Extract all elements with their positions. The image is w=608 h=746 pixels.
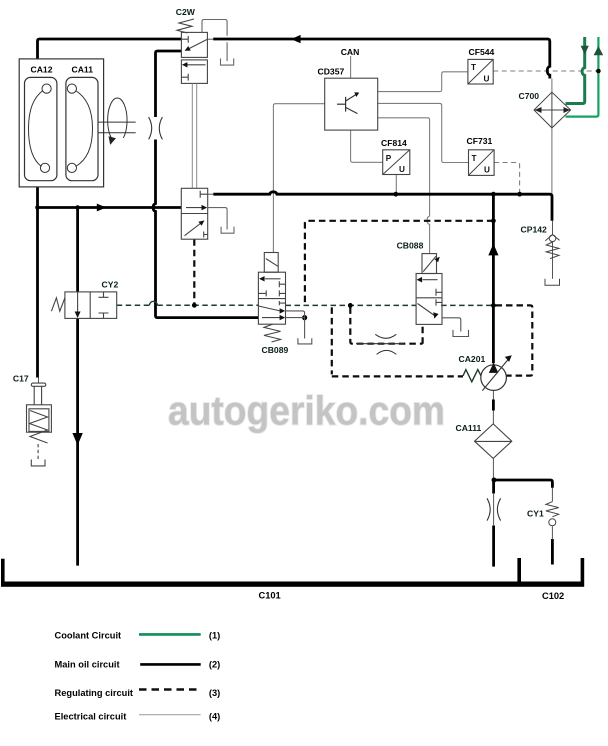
svg-text:T: T bbox=[471, 63, 476, 72]
svg-text:CB089: CB089 bbox=[262, 345, 289, 355]
svg-text:P: P bbox=[386, 154, 392, 163]
svg-text:CF544: CF544 bbox=[469, 47, 495, 57]
svg-text:CA201: CA201 bbox=[459, 354, 486, 364]
svg-text:Main oil circuit: Main oil circuit bbox=[55, 659, 120, 669]
svg-text:CB088: CB088 bbox=[397, 241, 424, 251]
svg-text:autogeriko.com: autogeriko.com bbox=[168, 388, 445, 434]
svg-text:U: U bbox=[484, 166, 490, 175]
svg-text:(1): (1) bbox=[209, 630, 220, 640]
svg-text:(4): (4) bbox=[209, 711, 220, 721]
svg-text:CD357: CD357 bbox=[318, 67, 345, 77]
svg-text:(3): (3) bbox=[209, 688, 220, 698]
svg-text:C101: C101 bbox=[259, 591, 281, 601]
svg-text:C102: C102 bbox=[542, 591, 564, 601]
svg-text:(2): (2) bbox=[209, 659, 220, 669]
svg-text:CY2: CY2 bbox=[102, 279, 119, 289]
svg-text:C700: C700 bbox=[519, 91, 540, 101]
svg-text:CA111: CA111 bbox=[456, 423, 482, 433]
svg-text:CA11: CA11 bbox=[72, 64, 94, 74]
svg-text:Coolant Circuit: Coolant Circuit bbox=[55, 630, 122, 640]
svg-text:CAN: CAN bbox=[341, 47, 360, 57]
svg-text:Regulating circuit: Regulating circuit bbox=[55, 688, 134, 698]
svg-text:T: T bbox=[472, 154, 477, 163]
svg-text:Electrical circuit: Electrical circuit bbox=[55, 711, 127, 721]
svg-text:CY1: CY1 bbox=[527, 509, 544, 519]
svg-text:CF814: CF814 bbox=[381, 138, 407, 148]
svg-text:C17: C17 bbox=[13, 374, 29, 384]
svg-text:CF731: CF731 bbox=[467, 136, 493, 146]
svg-text:CA12: CA12 bbox=[31, 64, 53, 74]
svg-text:C2W: C2W bbox=[176, 7, 196, 17]
svg-text:CP142: CP142 bbox=[521, 225, 547, 235]
svg-text:U: U bbox=[484, 75, 490, 84]
svg-text:U: U bbox=[399, 165, 405, 174]
